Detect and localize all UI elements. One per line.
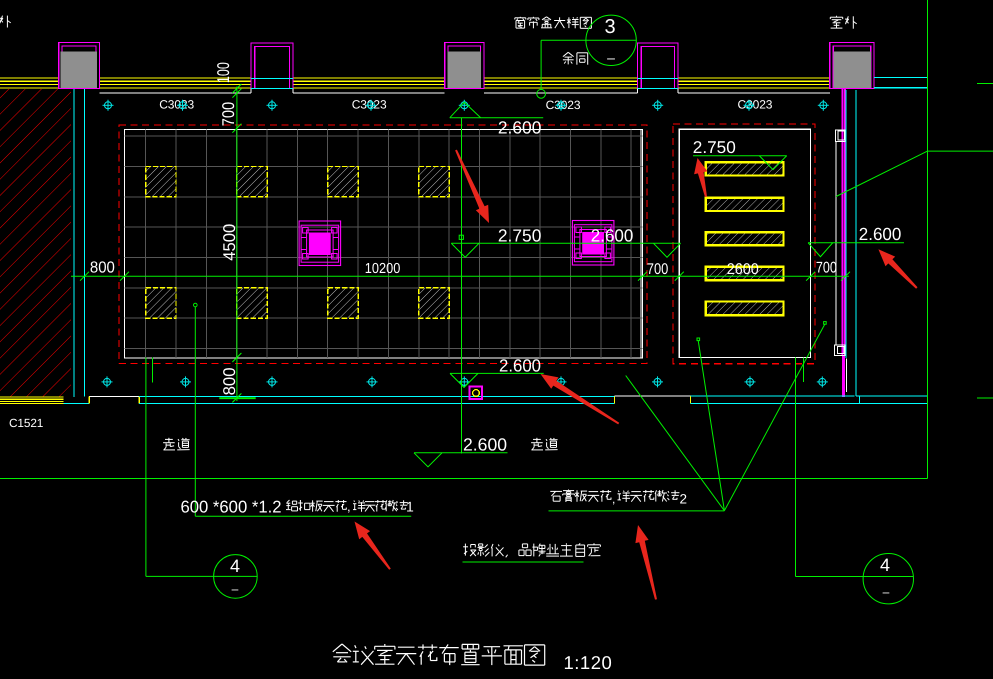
svg-text:10200: 10200 — [365, 261, 401, 277]
svg-text:800: 800 — [220, 367, 239, 395]
svg-text:2.600: 2.600 — [498, 117, 542, 137]
svg-text:2.600: 2.600 — [859, 224, 902, 244]
svg-text:2.750: 2.750 — [693, 138, 736, 157]
svg-text:800: 800 — [90, 260, 115, 277]
svg-text:700: 700 — [816, 259, 837, 276]
svg-text:600 *600 *1.2: 600 *600 *1.2 — [181, 498, 282, 517]
svg-text:C3023: C3023 — [738, 98, 773, 112]
svg-text:2: 2 — [680, 492, 688, 507]
svg-text:1: 1 — [406, 499, 414, 515]
svg-text:2.600: 2.600 — [591, 225, 634, 245]
svg-text:,: , — [612, 492, 615, 506]
svg-text:C1521: C1521 — [9, 416, 43, 430]
svg-text:2.750: 2.750 — [498, 225, 542, 245]
svg-text:C3023: C3023 — [159, 97, 194, 111]
svg-text:–: – — [607, 50, 615, 66]
svg-text:700: 700 — [219, 102, 238, 127]
svg-text:100: 100 — [214, 62, 233, 83]
svg-text:–: – — [883, 585, 890, 599]
svg-text:2.600: 2.600 — [463, 435, 507, 455]
svg-text:–: – — [232, 582, 239, 596]
svg-text:2.600: 2.600 — [499, 355, 541, 375]
svg-text:3: 3 — [604, 16, 615, 38]
svg-text:700: 700 — [647, 261, 669, 278]
svg-text:C3023: C3023 — [352, 97, 387, 111]
svg-text:4: 4 — [880, 555, 890, 575]
svg-text:2600: 2600 — [727, 261, 759, 278]
svg-text:4: 4 — [230, 556, 240, 576]
svg-text:,: , — [347, 499, 351, 514]
svg-text:4500: 4500 — [220, 224, 239, 261]
svg-text:1:120: 1:120 — [564, 652, 613, 673]
